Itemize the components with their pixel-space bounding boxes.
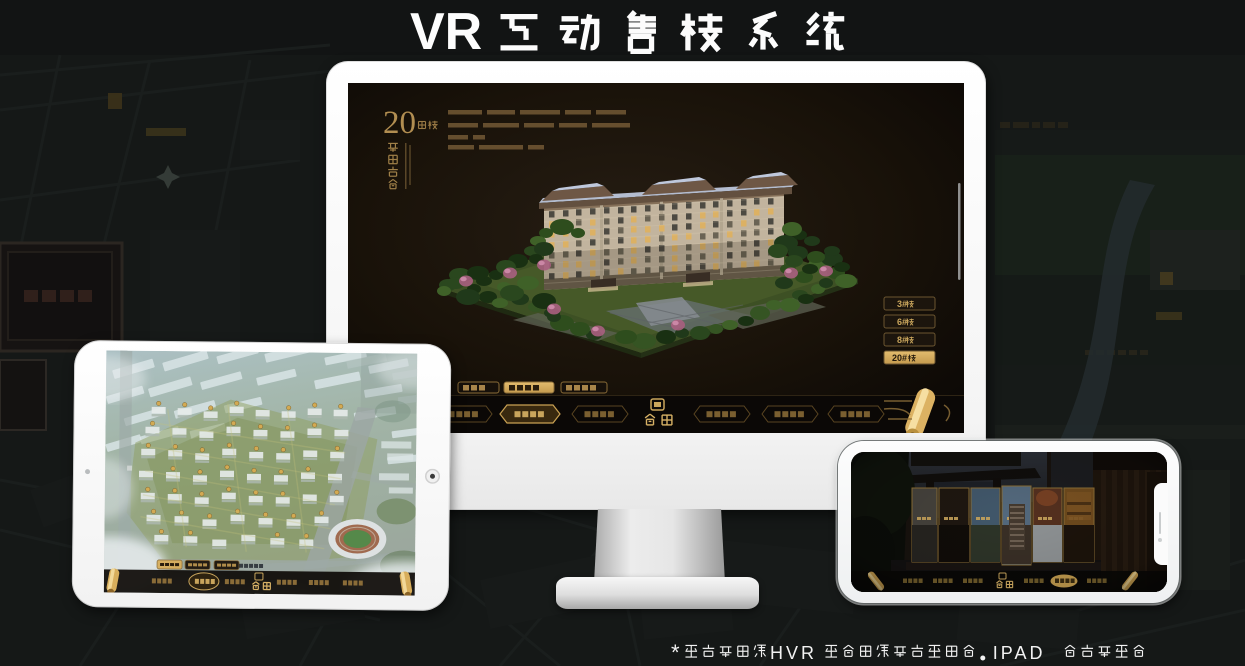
svg-text:3#: 3# <box>897 299 907 309</box>
svg-text:6#: 6# <box>897 317 907 327</box>
svg-text:IPAD: IPAD <box>993 643 1046 663</box>
svg-text:HVR: HVR <box>770 643 817 663</box>
svg-text:20: 20 <box>383 105 416 141</box>
svg-text:VR: VR <box>410 4 482 58</box>
svg-text:8#: 8# <box>897 335 907 345</box>
svg-text:*: * <box>671 640 680 665</box>
svg-text:20#: 20# <box>892 353 907 363</box>
